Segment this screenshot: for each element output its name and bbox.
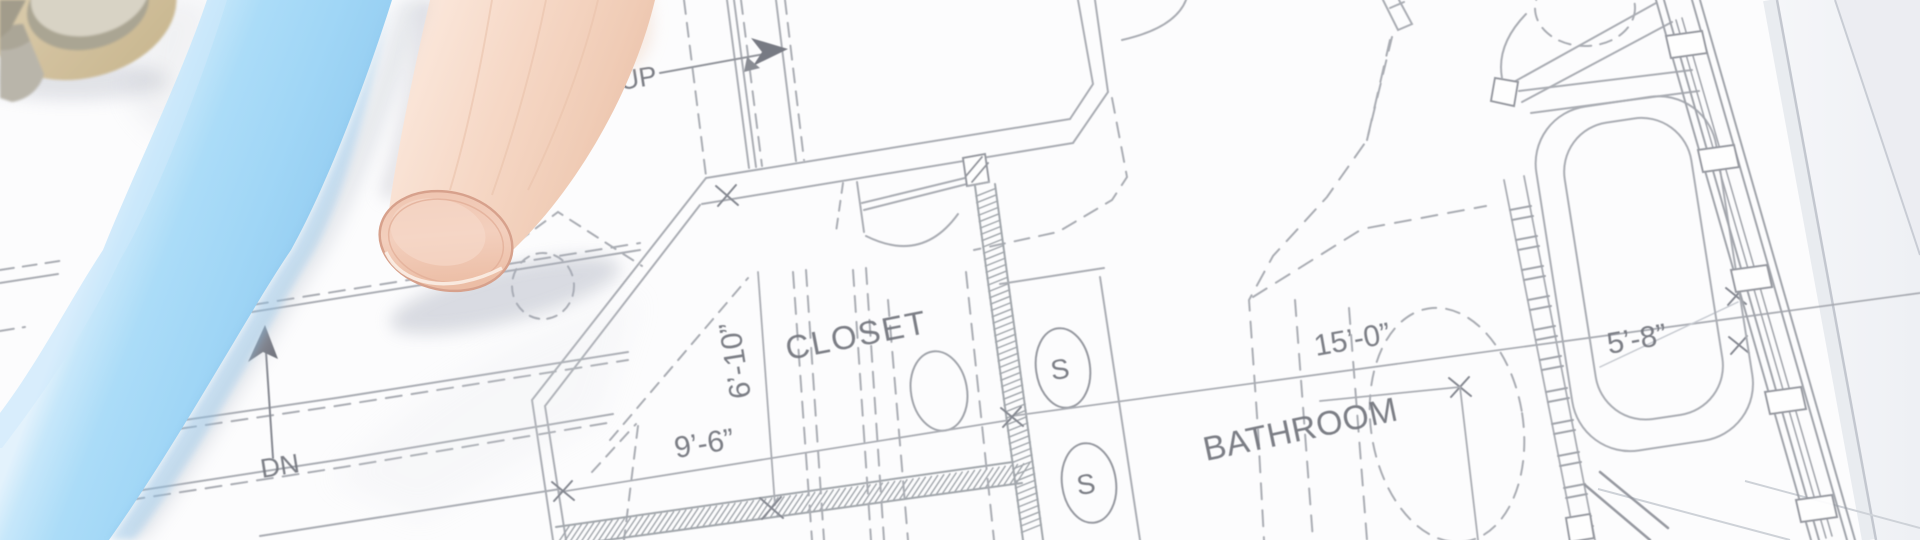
svg-text:DN: DN xyxy=(258,448,301,484)
